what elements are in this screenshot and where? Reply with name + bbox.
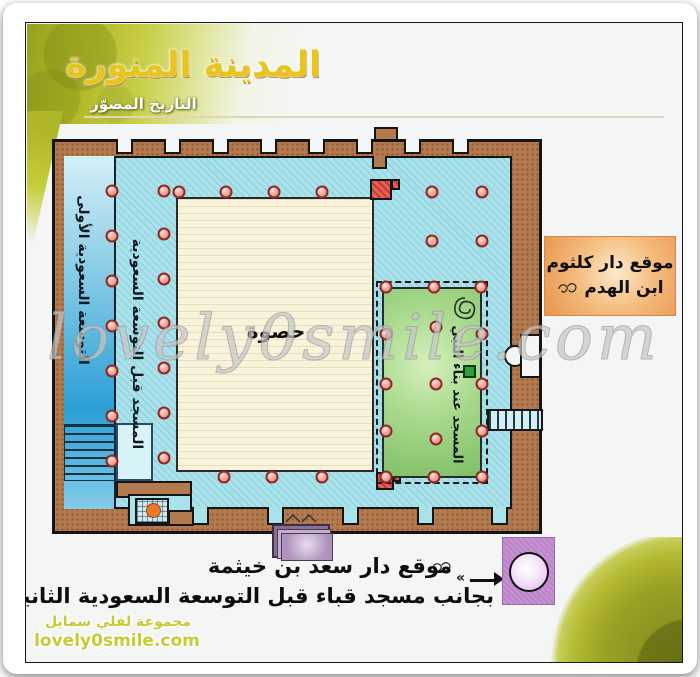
- east-steps: [487, 409, 543, 431]
- crenellation-gap: [356, 139, 373, 154]
- pointer-arrow-line: [470, 579, 496, 582]
- column-dot: [173, 186, 186, 199]
- crenellation-gap: [491, 507, 508, 525]
- crenellation-gap: [417, 507, 434, 525]
- column-dot: [266, 471, 279, 484]
- column-dot: [426, 235, 439, 248]
- column-dot: [106, 320, 119, 333]
- credit-site-url: lovely0smile.com: [28, 631, 206, 651]
- crenellation-gap: [404, 139, 421, 154]
- column-dot: [476, 425, 489, 438]
- credit-group-name: مجموعة لفلي سمايل: [34, 614, 202, 630]
- well-opening: [146, 503, 161, 518]
- crenellation-gap: [452, 139, 469, 154]
- column-dot: [476, 378, 489, 391]
- kulthum-line1: موقع دار كلثوم: [545, 253, 675, 274]
- saad-caption-line1: موقع دار سعد بن خيثمة: [430, 554, 452, 578]
- column-dot: [380, 378, 393, 391]
- column-dot: [106, 410, 119, 423]
- column-dot: [106, 275, 119, 288]
- crenellation-gap: [267, 507, 284, 525]
- arrow-tail-mark: «: [456, 570, 465, 586]
- first-expansion-label: التوسعة السعودية الأولى: [75, 195, 91, 365]
- brand-calligraphy-title: المدينة المنورة: [101, 33, 321, 97]
- stairs-structure: [64, 424, 116, 481]
- column-dot: [476, 471, 489, 484]
- before-expansion-label: المسجد قبل التوسعة السعودية: [129, 229, 145, 459]
- crenellation-gap: [192, 507, 209, 525]
- well-structure: [135, 498, 169, 524]
- column-dot: [430, 321, 443, 334]
- kulthum-house-callout: موقع دار كلثوم ابن الهدم: [544, 236, 676, 316]
- column-dot: [106, 455, 119, 468]
- column-dot: [380, 281, 393, 294]
- column-dot: [158, 185, 171, 198]
- column-dot: [106, 365, 119, 378]
- column-dot: [106, 230, 119, 243]
- image-frame: المدينة المنورة التاريخ المصوّر حصوة الم…: [3, 3, 697, 674]
- column-dot: [220, 186, 233, 199]
- column-dot: [158, 273, 171, 286]
- column-dot: [475, 281, 488, 294]
- column-dot: [380, 328, 393, 341]
- kulthum-line2: ابن الهدم: [545, 278, 675, 299]
- column-dot: [158, 407, 171, 420]
- red-structure-north: [370, 179, 392, 200]
- column-dot: [158, 317, 171, 330]
- inner-wall-step: [168, 510, 194, 526]
- column-dot: [158, 362, 171, 375]
- column-dot: [430, 433, 443, 446]
- red-structure-north-step: [391, 179, 400, 190]
- column-dot: [106, 185, 119, 198]
- column-dot: [158, 452, 171, 465]
- courtyard-label: حصوة: [226, 319, 326, 343]
- crenellation-gap: [164, 139, 181, 154]
- crenellation-gap: [342, 507, 359, 525]
- crenellation-gap: [116, 139, 133, 154]
- east-door-recess: [520, 334, 541, 378]
- column-dot: [268, 186, 281, 199]
- arabesque-corner-decoration: [542, 537, 682, 662]
- wall-pier: [372, 156, 387, 169]
- main-gate: [272, 524, 330, 558]
- original-mosque-label: المسجد عند بناء النبي: [450, 310, 465, 480]
- column-dot: [428, 281, 441, 294]
- column-dot: [218, 471, 231, 484]
- crenellation-gap: [260, 139, 277, 154]
- column-dot: [476, 328, 489, 341]
- saad-caption-line2: بجانب مسجد قباء قبل التوسعة السعودية الث…: [25, 584, 494, 608]
- column-dot: [316, 471, 329, 484]
- column-dot: [476, 235, 489, 248]
- crenellation-gap: [212, 139, 229, 154]
- crenellation-gap: [308, 139, 325, 154]
- green-marker-square: [463, 365, 476, 378]
- column-dot: [428, 471, 441, 484]
- column-dot: [380, 471, 393, 484]
- page-canvas: المدينة المنورة التاريخ المصوّر حصوة الم…: [25, 22, 683, 663]
- column-dot: [316, 186, 329, 199]
- header-divider-line: [84, 116, 664, 118]
- column-dot: [426, 186, 439, 199]
- brand-subtitle: التاريخ المصوّر: [76, 95, 211, 115]
- gate-arrow-marks: [284, 512, 320, 524]
- column-dot: [158, 228, 171, 241]
- radiallahu-anhu-icon: [556, 279, 578, 297]
- column-dot: [380, 425, 393, 438]
- column-dot: [476, 186, 489, 199]
- column-dot: [430, 378, 443, 391]
